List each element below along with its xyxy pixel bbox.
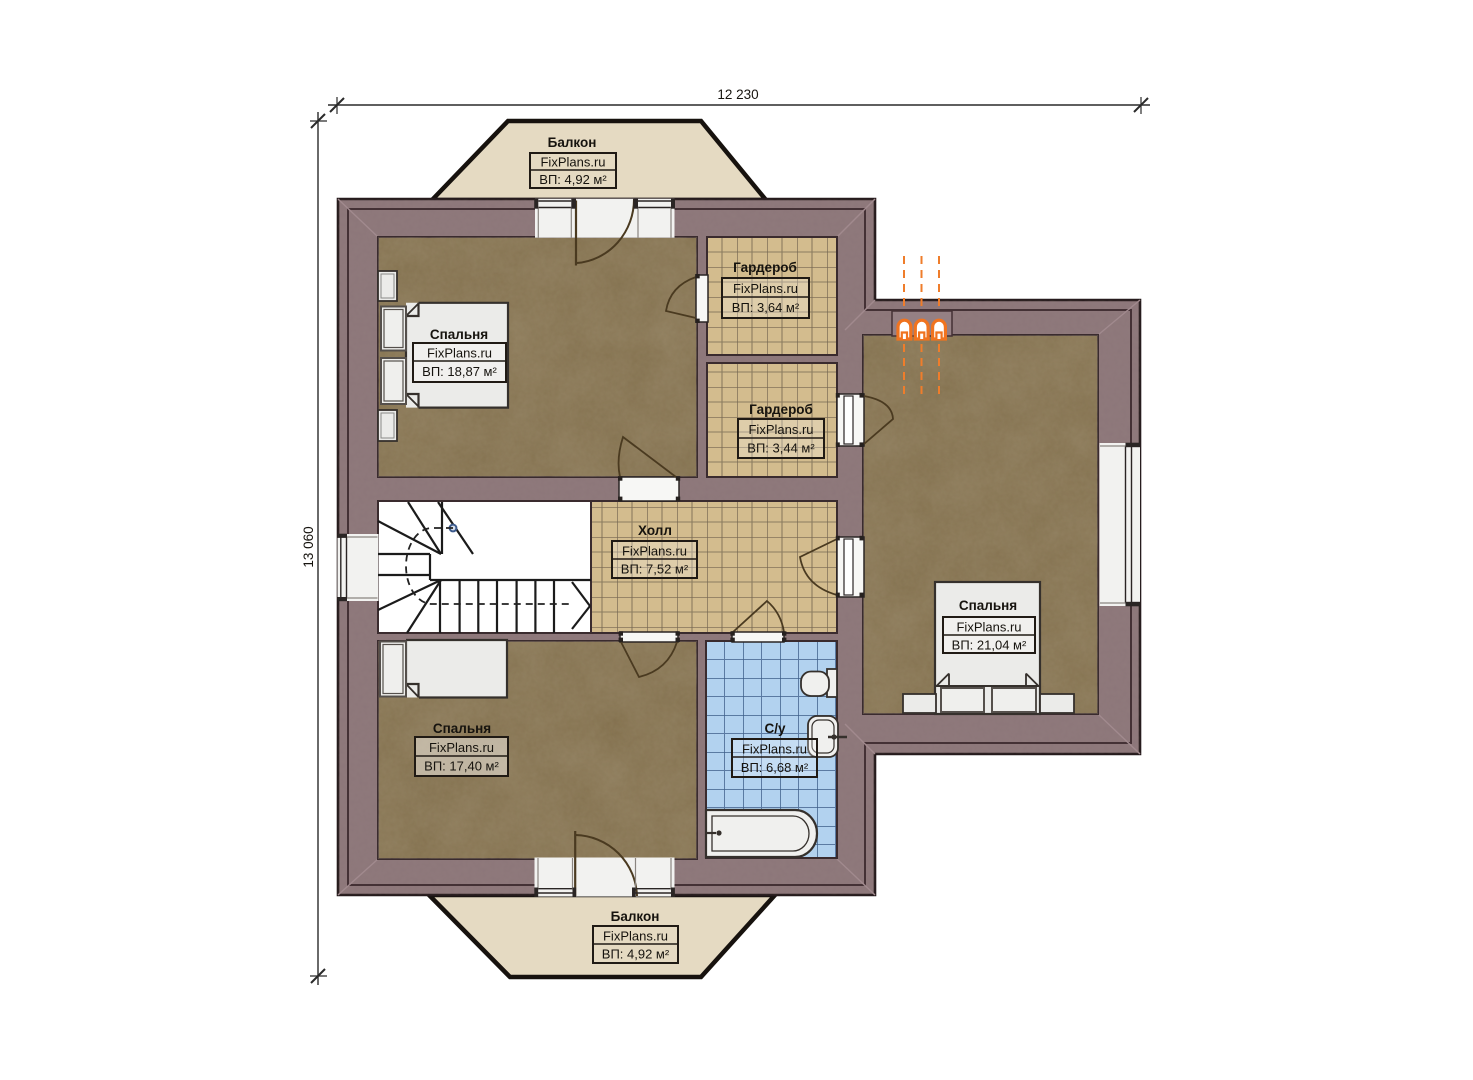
svg-text:ВП: 6,68 м²: ВП: 6,68 м² <box>741 760 809 775</box>
svg-text:ВП: 4,92 м²: ВП: 4,92 м² <box>602 947 670 962</box>
svg-text:Балкон: Балкон <box>548 135 597 150</box>
svg-text:С/у: С/у <box>764 721 786 736</box>
svg-text:FixPlans.ru: FixPlans.ru <box>622 544 687 559</box>
svg-text:ВП: 4,92 м²: ВП: 4,92 м² <box>539 172 607 187</box>
svg-text:FixPlans.ru: FixPlans.ru <box>603 929 668 944</box>
svg-text:ВП: 17,40 м²: ВП: 17,40 м² <box>424 759 499 774</box>
svg-text:ВП: 3,44 м²: ВП: 3,44 м² <box>747 441 815 456</box>
svg-text:FixPlans.ru: FixPlans.ru <box>956 620 1021 635</box>
svg-text:13 060: 13 060 <box>301 526 316 567</box>
svg-text:FixPlans.ru: FixPlans.ru <box>742 742 807 757</box>
svg-text:Балкон: Балкон <box>611 909 660 924</box>
svg-text:ВП: 7,52 м²: ВП: 7,52 м² <box>621 562 689 577</box>
svg-text:FixPlans.ru: FixPlans.ru <box>427 346 492 361</box>
svg-text:FixPlans.ru: FixPlans.ru <box>540 155 605 170</box>
svg-text:Холл: Холл <box>638 523 672 538</box>
svg-text:Гардероб: Гардероб <box>749 402 813 417</box>
svg-text:ВП: 3,64 м²: ВП: 3,64 м² <box>732 300 800 315</box>
svg-text:12 230: 12 230 <box>717 87 758 102</box>
svg-text:Спальня: Спальня <box>959 598 1017 613</box>
svg-text:FixPlans.ru: FixPlans.ru <box>748 422 813 437</box>
svg-text:Спальня: Спальня <box>433 721 491 736</box>
svg-text:Спальня: Спальня <box>430 327 488 342</box>
svg-text:FixPlans.ru: FixPlans.ru <box>429 740 494 755</box>
svg-text:FixPlans.ru: FixPlans.ru <box>733 281 798 296</box>
svg-text:ВП: 21,04 м²: ВП: 21,04 м² <box>952 638 1027 653</box>
svg-text:ВП: 18,87 м²: ВП: 18,87 м² <box>422 364 497 379</box>
svg-text:Гардероб: Гардероб <box>733 260 797 275</box>
